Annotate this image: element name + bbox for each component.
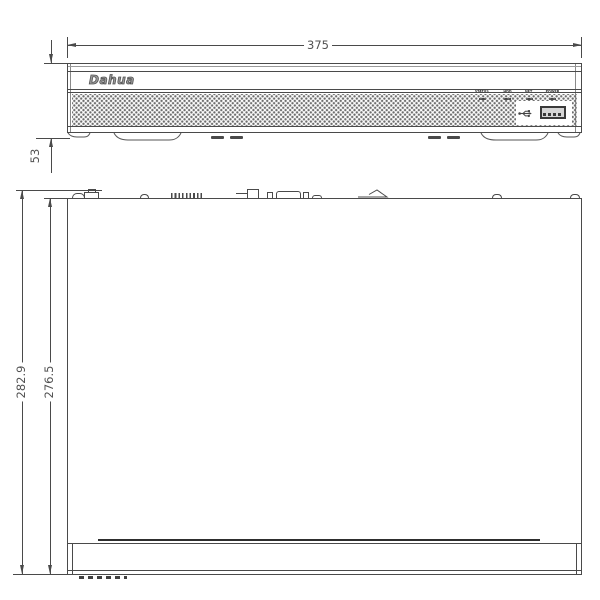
panel-edge-line	[70, 64, 71, 132]
depth-outer-label: 282.9	[14, 363, 28, 402]
ventilation-grille	[72, 94, 577, 126]
chassis-tab	[558, 133, 580, 138]
arrow-right-icon	[573, 43, 582, 47]
arrow-up-icon	[49, 138, 53, 147]
usb-port-pins	[543, 113, 563, 116]
connector-block	[247, 189, 259, 198]
front-panel-detail	[79, 576, 127, 579]
extension-line	[44, 63, 68, 64]
bracket-wedge	[358, 189, 388, 198]
front-edge-line	[68, 570, 581, 571]
front-bezel-line	[68, 543, 581, 544]
usb-area	[516, 101, 572, 125]
arrow-up-icon	[48, 198, 52, 207]
panel-line	[68, 71, 581, 72]
foot-pad	[447, 136, 460, 139]
chassis-seam-line	[98, 539, 540, 541]
arrow-down-icon	[20, 565, 24, 574]
brand-logo: Dahua	[89, 73, 135, 87]
rubber-foot	[113, 133, 183, 142]
extension-line	[13, 574, 70, 575]
height-dimension-label: 53	[28, 146, 42, 167]
dimension-drawing: 375 53 Dahua STATUS HDD NET POWER	[0, 0, 600, 600]
width-dimension-label: 375	[304, 38, 332, 52]
vga-port	[276, 191, 301, 198]
arrow-left-icon	[67, 43, 76, 47]
foot-pad	[428, 136, 441, 139]
panel-line	[68, 92, 581, 93]
extension-line	[16, 190, 102, 191]
arrow-up-icon	[20, 190, 24, 199]
usb-trident-icon	[518, 108, 534, 119]
foot-pad	[211, 136, 224, 139]
extension-line	[36, 138, 70, 139]
arrow-down-icon	[49, 54, 53, 63]
depth-inner-label: 276.5	[42, 363, 56, 402]
extension-line	[581, 37, 582, 58]
chassis-tab	[68, 133, 90, 138]
arrow-down-icon	[48, 565, 52, 574]
extension-line	[67, 37, 68, 58]
panel-line	[68, 126, 581, 127]
front-view: Dahua STATUS HDD NET POWER	[67, 63, 582, 133]
usb-port	[540, 106, 566, 119]
top-view	[67, 198, 582, 575]
foot-pad	[230, 136, 243, 139]
panel-line	[68, 89, 581, 90]
rubber-foot	[480, 133, 550, 142]
panel-line	[68, 66, 581, 67]
